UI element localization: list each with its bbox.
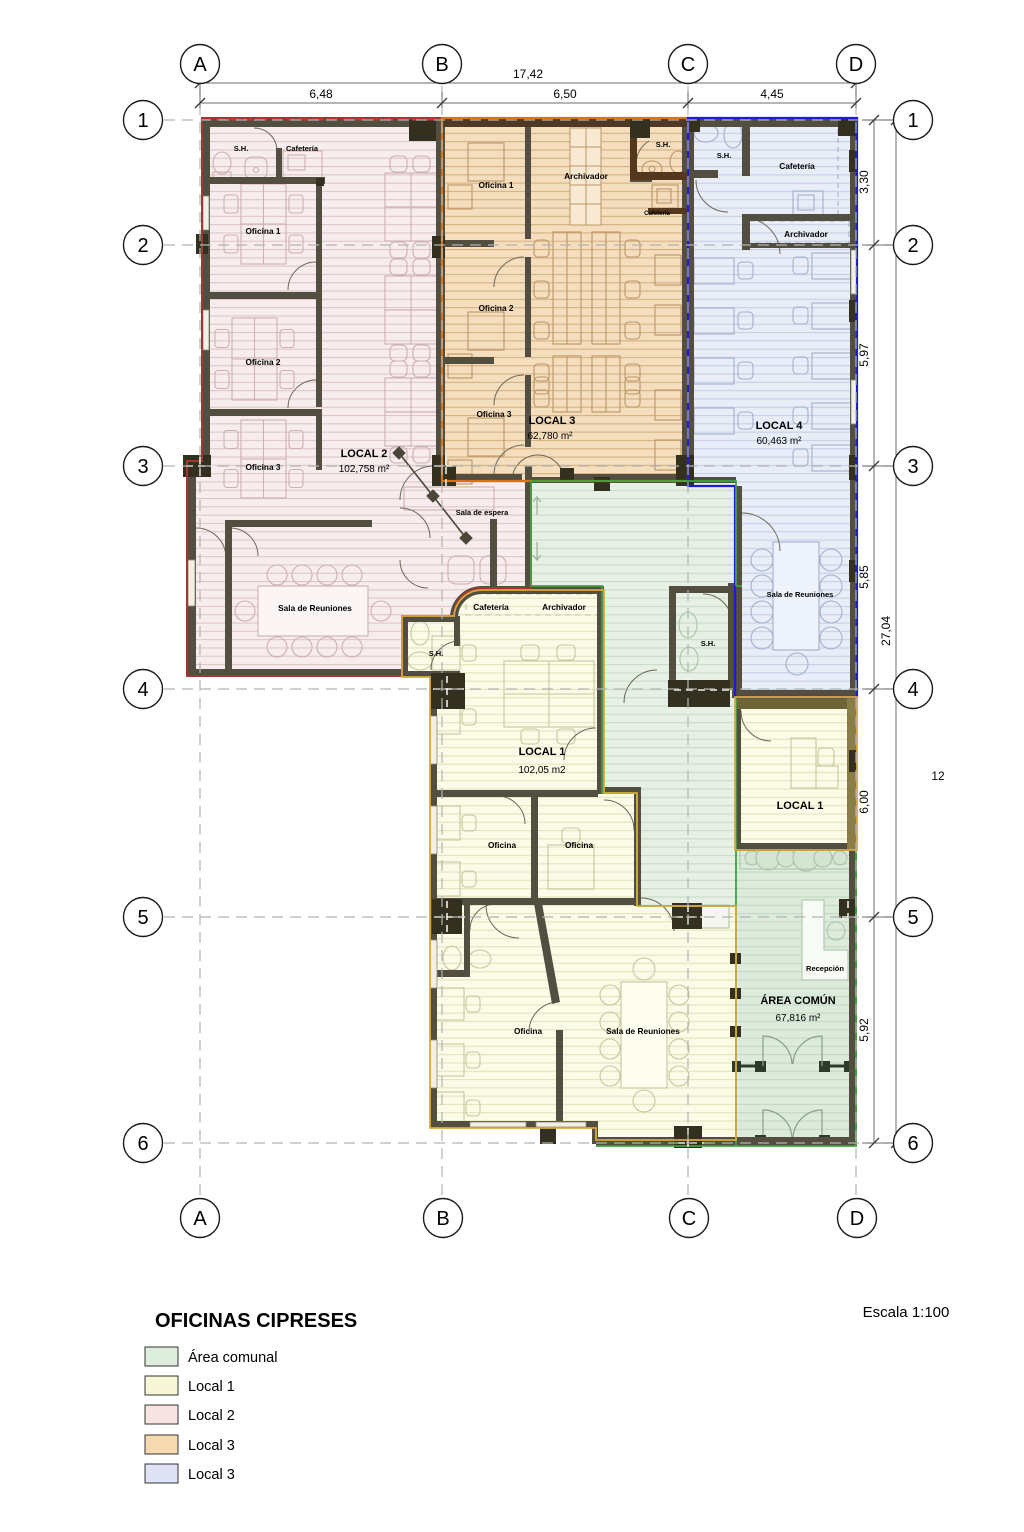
svg-text:6: 6 <box>137 1133 148 1155</box>
svg-text:Local 1: Local 1 <box>188 1379 235 1395</box>
svg-text:S.H.: S.H. <box>429 649 444 658</box>
svg-text:A: A <box>193 54 207 76</box>
svg-text:Oficina 2: Oficina 2 <box>478 303 513 313</box>
svg-text:60,463 m²: 60,463 m² <box>756 436 802 447</box>
svg-text:3: 3 <box>137 456 148 478</box>
svg-text:1: 1 <box>137 110 148 132</box>
svg-text:3: 3 <box>907 456 918 478</box>
svg-text:Archivador: Archivador <box>784 229 829 239</box>
svg-text:Local 2: Local 2 <box>188 1408 235 1424</box>
svg-text:D: D <box>849 54 863 76</box>
svg-text:6,00: 6,00 <box>857 790 871 814</box>
svg-text:Sala de espera: Sala de espera <box>456 508 509 517</box>
svg-text:Cafetería: Cafetería <box>473 602 509 612</box>
svg-text:5: 5 <box>137 907 148 929</box>
svg-text:Oficina 2: Oficina 2 <box>245 357 280 367</box>
svg-text:LOCAL 4: LOCAL 4 <box>756 420 804 432</box>
svg-text:Local 3: Local 3 <box>188 1438 235 1454</box>
svg-text:Archivador: Archivador <box>542 602 587 612</box>
svg-text:LOCAL 1: LOCAL 1 <box>777 800 824 812</box>
svg-text:5: 5 <box>907 907 918 929</box>
svg-text:Sala de Reuniones: Sala de Reuniones <box>767 590 834 599</box>
svg-text:S.H.: S.H. <box>234 144 249 153</box>
svg-text:Sala de Reuniones: Sala de Reuniones <box>606 1026 680 1036</box>
svg-text:LOCAL 1: LOCAL 1 <box>519 746 566 758</box>
svg-text:S.H.: S.H. <box>717 151 732 160</box>
svg-text:4: 4 <box>137 679 148 701</box>
svg-text:Cafetería: Cafetería <box>286 144 319 153</box>
svg-text:C: C <box>682 1208 696 1230</box>
svg-text:6,48: 6,48 <box>309 87 333 101</box>
svg-text:Oficina: Oficina <box>565 840 594 850</box>
svg-text:4,45: 4,45 <box>760 87 784 101</box>
svg-text:Oficina 3: Oficina 3 <box>476 409 511 419</box>
svg-text:12: 12 <box>931 769 945 783</box>
svg-text:Recepción: Recepción <box>806 964 844 973</box>
svg-text:27,04: 27,04 <box>879 616 893 646</box>
svg-text:A: A <box>193 1208 207 1230</box>
svg-text:5,97: 5,97 <box>857 343 871 367</box>
svg-text:C: C <box>681 54 695 76</box>
svg-text:S.H.: S.H. <box>701 639 716 648</box>
svg-text:S.H.: S.H. <box>656 140 671 149</box>
svg-text:5,85: 5,85 <box>857 565 871 589</box>
svg-text:LOCAL 3: LOCAL 3 <box>529 415 576 427</box>
svg-text:17,42: 17,42 <box>513 67 543 81</box>
svg-text:102,05 m2: 102,05 m2 <box>518 765 566 776</box>
svg-text:3,30: 3,30 <box>857 170 871 194</box>
svg-text:67,816 m²: 67,816 m² <box>775 1013 821 1024</box>
svg-text:Cafetería: Cafetería <box>779 161 815 171</box>
svg-text:1: 1 <box>907 110 918 132</box>
svg-text:Oficina: Oficina <box>488 840 517 850</box>
svg-text:62,780 m²: 62,780 m² <box>527 431 573 442</box>
svg-text:Oficina: Oficina <box>514 1026 543 1036</box>
svg-text:ÁREA COMÚN: ÁREA COMÚN <box>760 994 835 1007</box>
svg-text:LOCAL 2: LOCAL 2 <box>341 448 388 460</box>
svg-text:2: 2 <box>137 235 148 257</box>
svg-text:6: 6 <box>907 1133 918 1155</box>
svg-text:5,92: 5,92 <box>857 1018 871 1042</box>
svg-text:Oficina 1: Oficina 1 <box>245 226 280 236</box>
svg-text:B: B <box>436 1208 449 1230</box>
svg-text:B: B <box>435 54 448 76</box>
svg-text:D: D <box>850 1208 864 1230</box>
svg-text:Oficina 3: Oficina 3 <box>245 462 280 472</box>
svg-text:Sala de Reuniones: Sala de Reuniones <box>278 603 352 613</box>
svg-text:102,758 m²: 102,758 m² <box>339 464 390 475</box>
svg-text:Área comunal: Área comunal <box>188 1349 277 1366</box>
svg-text:4: 4 <box>907 679 918 701</box>
svg-text:2: 2 <box>907 235 918 257</box>
svg-text:Cafetería: Cafetería <box>644 211 670 217</box>
svg-text:6,50: 6,50 <box>553 87 577 101</box>
svg-text:Local 3: Local 3 <box>188 1467 235 1483</box>
svg-text:Oficina 1: Oficina 1 <box>478 180 513 190</box>
svg-text:Archivador: Archivador <box>564 171 609 181</box>
svg-text:Escala 1:100: Escala 1:100 <box>863 1304 950 1321</box>
svg-text:OFICINAS CIPRESES: OFICINAS CIPRESES <box>155 1310 357 1332</box>
